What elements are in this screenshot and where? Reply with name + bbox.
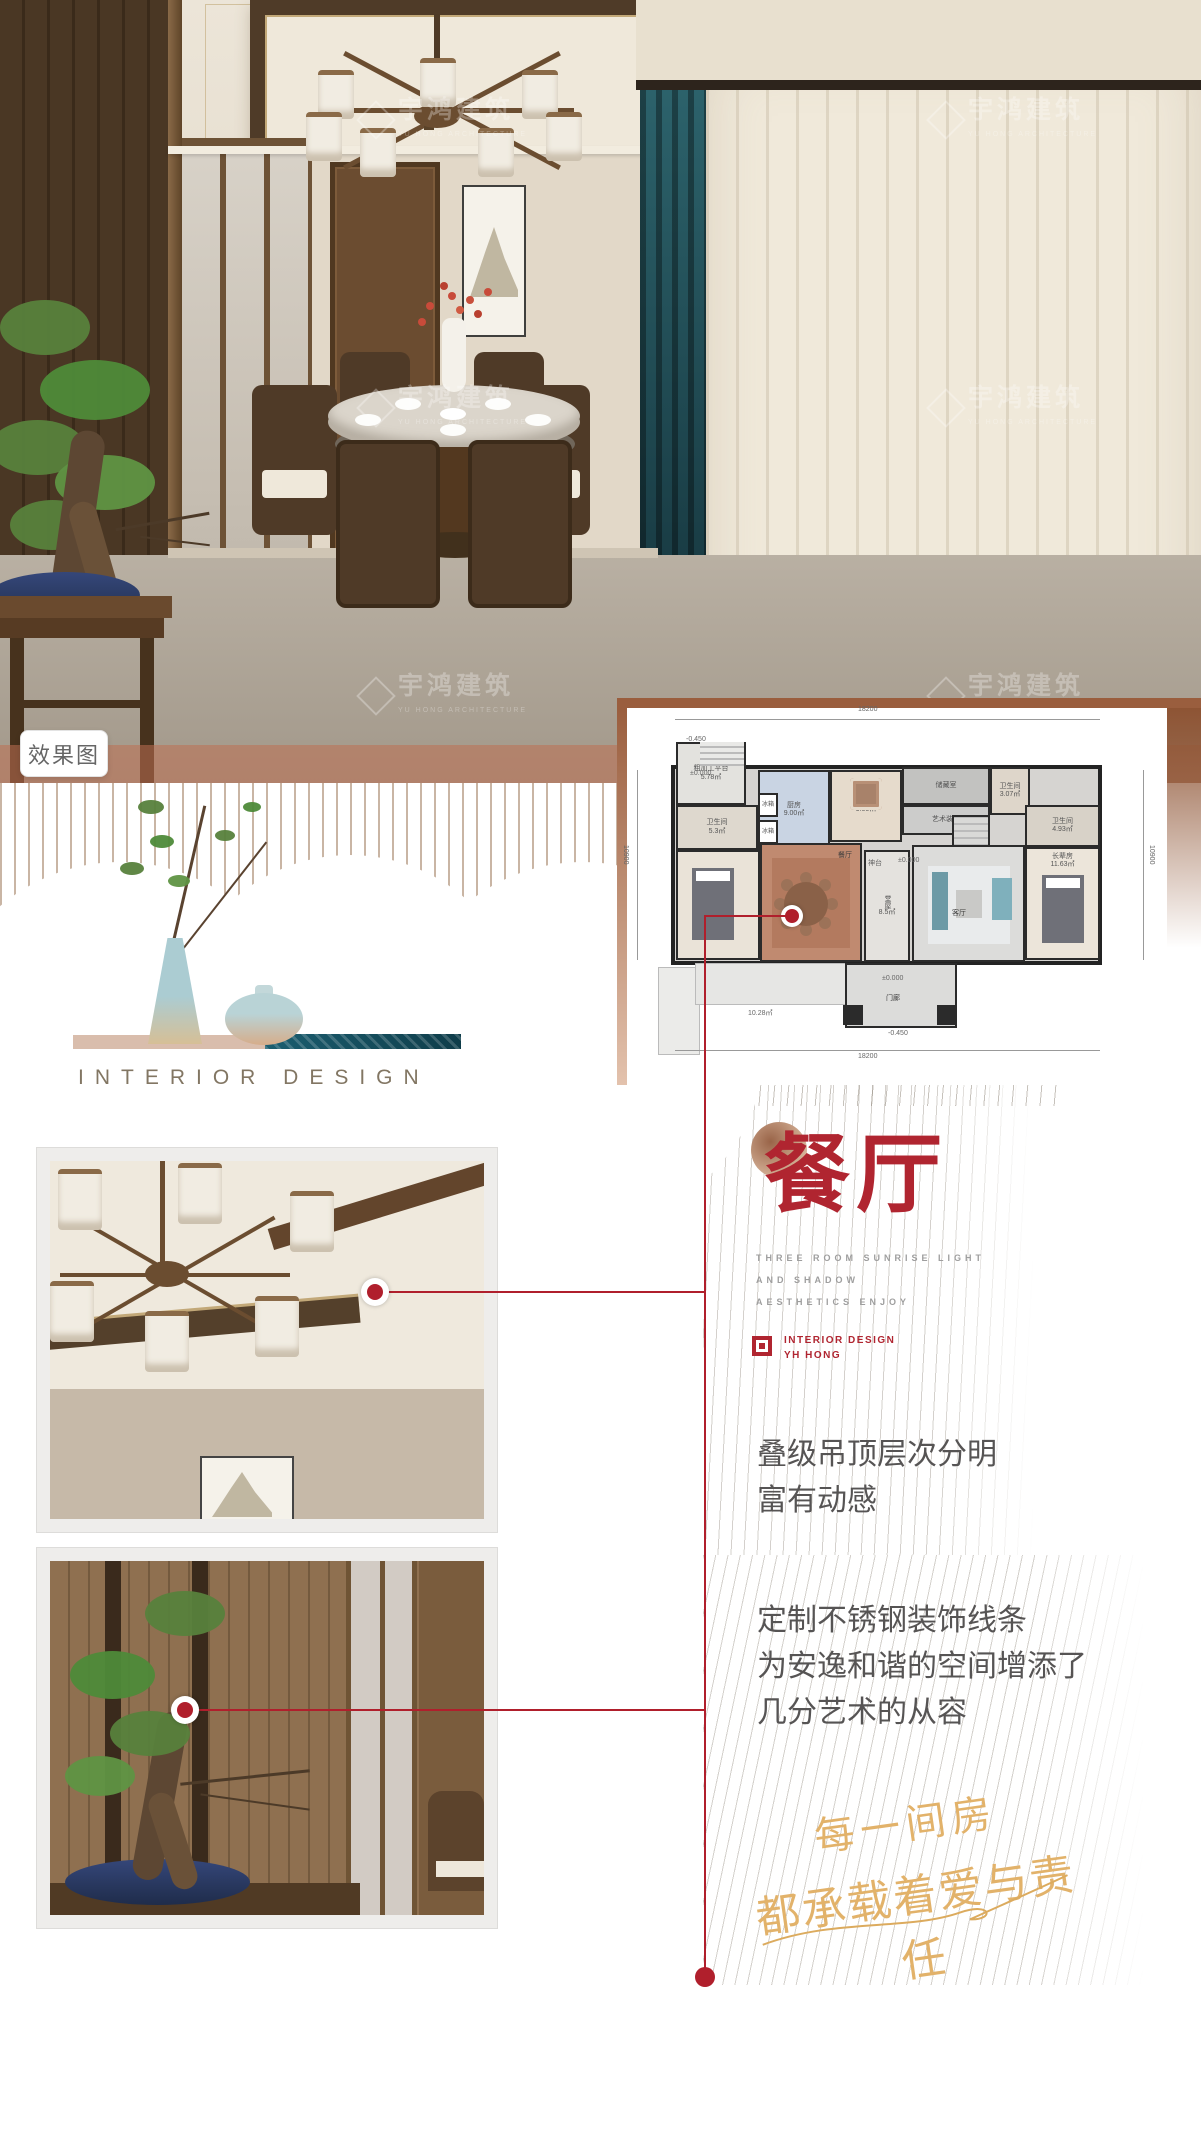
console-table-top <box>0 596 172 618</box>
centerpiece-vase <box>442 318 466 392</box>
brand-cube-icon <box>926 388 966 428</box>
connector-photo2 <box>375 1291 705 1293</box>
chandelier-hub <box>145 1261 189 1287</box>
feature-line: 几分艺术的从容 <box>757 1690 1087 1736</box>
curtain-rod <box>636 80 1201 90</box>
brand-cube-icon <box>356 100 396 140</box>
brand-cube-icon <box>356 388 396 428</box>
chandelier-shade <box>178 1163 222 1224</box>
chandelier-shade <box>50 1281 94 1342</box>
watermark: 宇鸿建筑 YU HONG ARCHITECTURE <box>932 98 1097 141</box>
chandelier-chain <box>434 14 440 64</box>
floorplan-frame-left <box>617 708 627 1085</box>
plan-pillow <box>1046 878 1080 888</box>
watermark: 宇鸿建筑 YU HONG ARCHITECTURE <box>932 386 1097 429</box>
round-vase <box>225 993 303 1045</box>
plan-porch-label: 门廊 <box>886 993 900 1003</box>
bonsai-foliage <box>0 300 90 355</box>
bronze-trim <box>346 1561 351 1915</box>
section-title: 餐厅 <box>764 1128 948 1223</box>
dim-line-left <box>637 770 638 960</box>
plan-room-bath-right: 卫生间4.93㎡ <box>1025 805 1100 847</box>
plan-altar-label: 神台 <box>868 858 882 868</box>
chandelier-shade <box>306 112 342 161</box>
feature-line: 定制不锈钢装饰线条 <box>757 1598 1087 1644</box>
floorplan-frame-right <box>1167 708 1201 948</box>
watermark-en: YU HONG ARCHITECTURE <box>398 131 527 138</box>
dim-line-bottom <box>675 1050 1100 1051</box>
dining-chair <box>252 385 337 535</box>
feature-line: 为安逸和谐的空间增添了 <box>757 1644 1087 1690</box>
dining-chair <box>336 440 440 608</box>
connector-photo3 <box>185 1709 705 1711</box>
branch-leaf <box>138 800 164 814</box>
plan-pillow <box>696 871 730 881</box>
plan-pillar <box>843 1005 863 1025</box>
brand-line2: YH HONG <box>784 1350 841 1361</box>
mountain-art <box>470 227 518 297</box>
interior-design-caption: INTERIOR DESIGN <box>78 1066 430 1090</box>
plan-pillar <box>937 1005 957 1025</box>
plan-room-bath-left: 卫生间5.3㎡ <box>676 805 758 850</box>
chair-cushion <box>262 470 327 498</box>
dim-bottom: 18200 <box>858 1053 877 1060</box>
plan-dining-label: 餐厅 <box>838 850 852 860</box>
berry-branch <box>448 292 456 300</box>
branch-leaf <box>120 862 144 875</box>
wall-art <box>200 1456 294 1519</box>
connector-vertical <box>704 915 706 1977</box>
feature-ceiling: 叠级吊顶层次分明 富有动感 <box>757 1432 997 1524</box>
plan-porch-area: 10.28㎡ <box>748 1008 773 1018</box>
subtitle-line: AND SHADOW <box>756 1275 859 1285</box>
dim-top: 18200 <box>858 706 877 713</box>
brand-cube-icon <box>356 676 396 716</box>
branch-leaf <box>243 802 261 812</box>
branch-leaf <box>168 875 190 887</box>
photo3-marker-dot <box>177 1702 193 1718</box>
feature-steel: 定制不锈钢装饰线条 为安逸和谐的空间增添了 几分艺术的从容 <box>757 1598 1087 1736</box>
bonsai-foliage <box>40 360 150 420</box>
bronze-trim <box>380 1561 385 1915</box>
chandelier-shade <box>546 112 582 161</box>
plan-fridge: 冰箱 <box>758 793 778 817</box>
ceiling-wood-edge <box>50 1297 361 1352</box>
plan-terrace-step <box>658 967 700 1055</box>
shelf-feather-texture <box>265 1034 461 1049</box>
plan-function-table <box>850 778 882 810</box>
chandelier-shade <box>145 1311 189 1372</box>
console-table-apron <box>0 618 164 638</box>
feature-line: 叠级吊顶层次分明 <box>757 1432 997 1478</box>
detail-photo-chandelier <box>37 1148 497 1532</box>
feature-line: 富有动感 <box>757 1478 997 1524</box>
connector-plan-horizontal <box>705 915 790 917</box>
console-stretcher <box>10 700 154 708</box>
plan-entry-steps <box>700 742 744 766</box>
bonsai-foliage <box>145 1591 225 1636</box>
chandelier-shade <box>255 1296 299 1357</box>
plan-room-storage: 储藏室 <box>902 767 990 805</box>
render-tag: 效果图 <box>20 730 108 777</box>
plan-living-label: 客厅 <box>952 908 966 918</box>
brand-line1: INTERIOR DESIGN <box>784 1335 895 1346</box>
dim-line-top <box>675 719 1100 720</box>
dining-chair <box>468 440 572 608</box>
chandelier-shade <box>290 1191 334 1252</box>
floorplan-frame-top <box>617 698 1201 708</box>
upper-wall <box>636 0 1201 85</box>
chandelier-chain <box>160 1161 165 1276</box>
bonsai-foliage <box>70 1651 155 1699</box>
chandelier-shade <box>58 1169 102 1230</box>
dim-right: 10900 <box>1148 845 1155 864</box>
branch-leaf <box>150 835 174 848</box>
watermark: 宇鸿建筑 YU HONG ARCHITECTURE <box>362 674 527 717</box>
detail-photo-bonsai <box>37 1548 497 1928</box>
dim-line-right <box>1143 770 1144 960</box>
photo2-marker-dot <box>367 1284 383 1300</box>
dim-left: 10900 <box>622 845 629 864</box>
mountain-art <box>212 1472 272 1517</box>
bottom-end-dot <box>695 1967 715 1987</box>
plan-sofa <box>992 878 1012 920</box>
plan-terrace <box>695 963 847 1005</box>
branch-leaf <box>215 830 235 841</box>
plan-marker-dot <box>785 909 799 923</box>
plan-sofa <box>932 872 948 930</box>
plan-room-bath-top: 卫生间3.07㎡ <box>990 767 1030 815</box>
subtitle-line: AESTHETICS ENJOY <box>756 1297 910 1307</box>
mountain-painting <box>462 185 526 337</box>
render-tag-label: 效果图 <box>28 738 100 770</box>
bonsai-foliage <box>65 1756 135 1796</box>
watermark: 宇鸿建筑 YU HONG ARCHITECTURE <box>362 386 527 429</box>
chair-cushion <box>436 1861 484 1877</box>
dining-room-render-photo: 宇鸿建筑 YU HONG ARCHITECTURE 宇鸿建筑 YU HONG A… <box>0 0 1201 783</box>
subtitle-line: THREE ROOM SUNRISE LIGHT <box>756 1253 985 1263</box>
brand-cube-icon <box>926 100 966 140</box>
watermark-cn: 宇鸿建筑 <box>398 96 514 124</box>
plan-fridge: 冰箱 <box>758 820 778 844</box>
watermark: 宇鸿建筑 YU HONG ARCHITECTURE <box>362 98 527 141</box>
bronze-trim <box>412 1561 417 1915</box>
seal-icon-core <box>759 1343 765 1349</box>
